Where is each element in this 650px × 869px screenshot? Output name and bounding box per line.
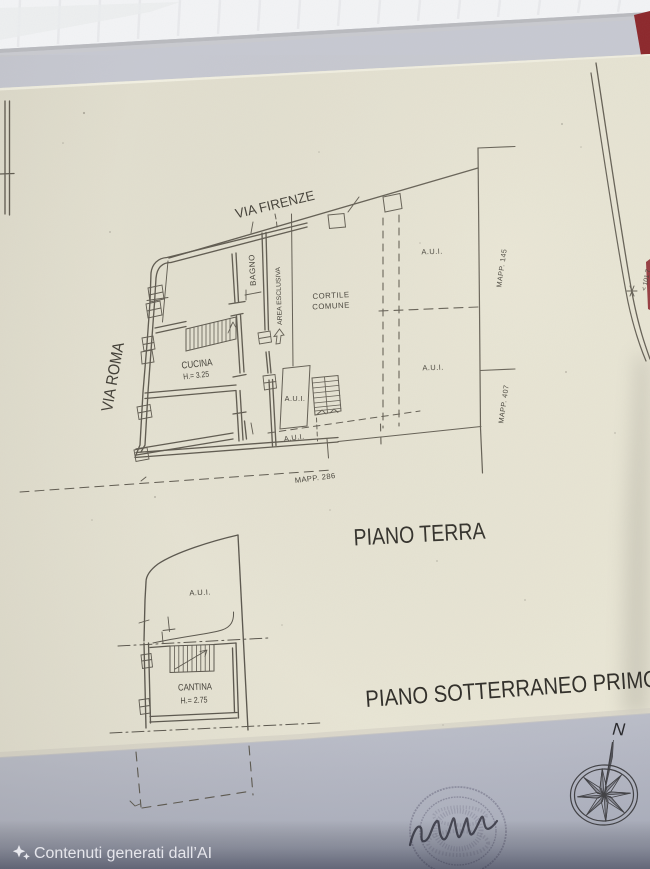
- svg-text:Contenuti generati dall’AI: Contenuti generati dall’AI: [34, 845, 212, 862]
